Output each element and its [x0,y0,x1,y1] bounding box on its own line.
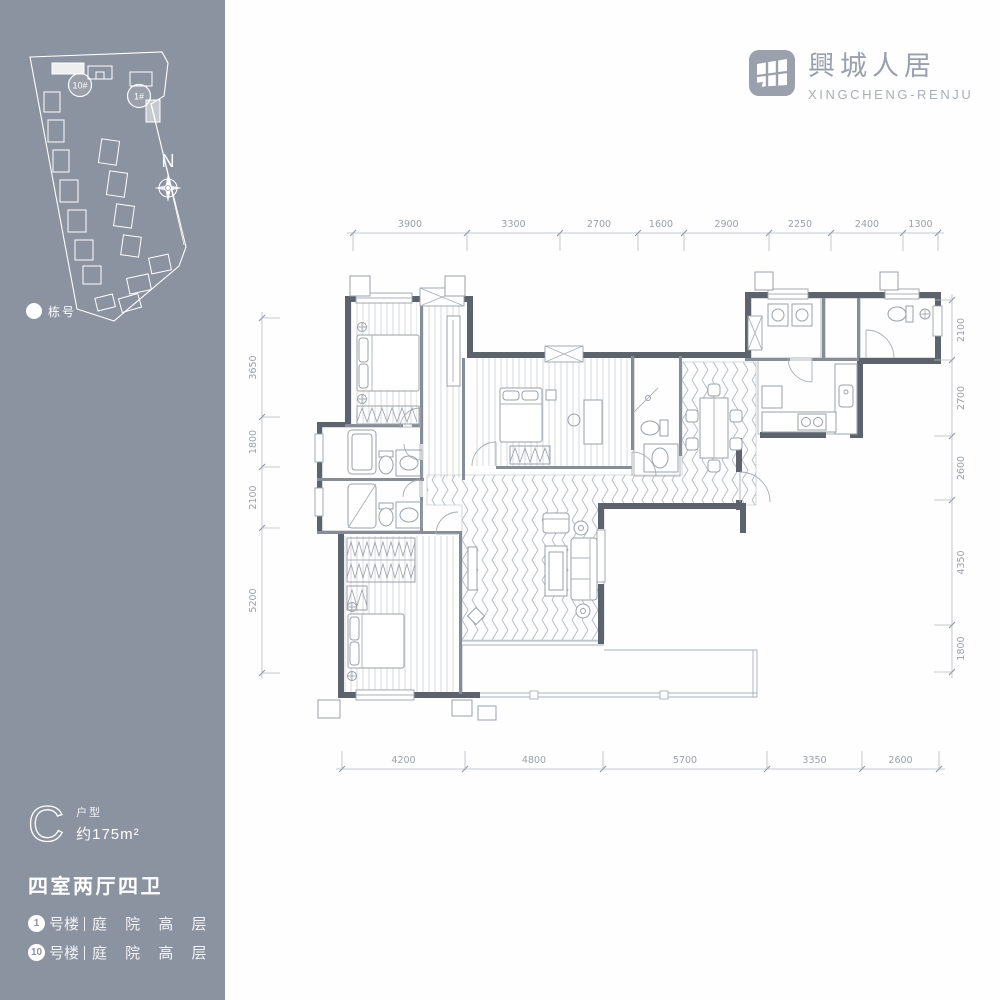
side-table-icon [574,521,588,535]
bathroom1 [348,430,422,476]
dimension-label: 3900 [398,219,422,230]
cabinet-icon [447,316,460,386]
balcony [462,641,757,699]
bay-box-icon [748,316,762,350]
window-icon [933,306,942,336]
toilet-icon [379,456,393,474]
dimension-label: 2600 [956,456,967,480]
chair-icon [708,384,720,396]
bay-box-icon [545,346,583,362]
dimension-label: 5200 [248,588,259,612]
bathroom4 [888,306,930,322]
dimension-label: 5700 [673,755,697,766]
dimension-label: 1800 [248,430,259,454]
side-table-icon [576,604,590,618]
sofa-icon [571,538,597,600]
window-icon [315,488,323,516]
toilet-tank-icon [660,420,668,436]
dimension-label: 1600 [649,219,673,230]
fridge-icon [762,386,782,408]
ac-platform-icon [445,276,465,296]
dimension-label: 3650 [248,355,259,379]
dimension-label: 4800 [522,755,546,766]
dimension-axis-dims_bottom: 42004800570033502600 [336,751,945,772]
toilet-tank-icon [906,306,913,322]
dimension-label: 2100 [248,485,259,509]
chair-icon [686,438,698,450]
chair-icon [708,460,720,472]
window-icon [597,530,605,582]
dimension-label: 2100 [956,318,967,342]
tv-console-icon [468,547,477,590]
ac-platform-icon [478,706,496,720]
dimension-axis-dims_top: 39003300270016002900225024001300 [347,219,944,251]
door-icon [866,330,894,358]
toilet-icon [641,421,659,435]
door-icon [788,358,812,382]
washer-icon [768,304,788,326]
door-icon [404,444,420,460]
ac-platform-icon [318,700,340,718]
page: 10# 1# N 栋号 C [0,0,1000,1000]
window-icon [315,434,323,462]
ac-platform-icon [350,276,370,296]
toilet-icon [379,508,393,526]
ac-platform-icon [755,272,773,290]
dimension-label: 2600 [888,755,912,766]
chair-icon [730,410,742,422]
dimension-label: 2400 [855,219,879,230]
nightstand-icon [546,390,556,400]
sink-icon [652,448,668,468]
door-icon [403,480,420,497]
washer-icon [792,304,812,326]
kitchen [762,364,857,434]
sink-icon [400,508,418,522]
chair-icon [686,410,698,422]
dimension-label: 4200 [391,755,415,766]
kitchen-counter [835,364,857,434]
dimension-label: 2250 [788,219,812,230]
bathroom2 [348,484,422,528]
ac-platform-icon [452,700,472,716]
chair-icon [730,438,742,450]
dimension-label: 3350 [802,755,826,766]
dimension-label: 1800 [956,636,967,660]
door-icon [436,512,458,534]
floorplan: 3900330027001600290022502400130042004800… [0,0,1000,1000]
laundry-room [768,304,812,326]
bedroom2-floor [473,358,630,466]
dimension-label: 1300 [908,219,932,230]
armchair-icon [543,513,569,533]
desk-icon [584,400,602,444]
dimension-label: 2700 [587,219,611,230]
dimension-label: 2700 [956,386,967,410]
coffee-table-icon [545,546,567,596]
kitchen-counter [762,412,836,432]
dimension-axis-dims_left: 3650180021005200 [248,312,280,679]
dimension-label: 2900 [714,219,738,230]
bathroom3 [634,388,678,472]
toilet-icon [888,307,906,321]
dimension-label: 4350 [956,550,967,574]
ac-platform-icon [880,272,898,290]
dimension-label: 3300 [501,219,525,230]
sink-icon [400,456,418,470]
